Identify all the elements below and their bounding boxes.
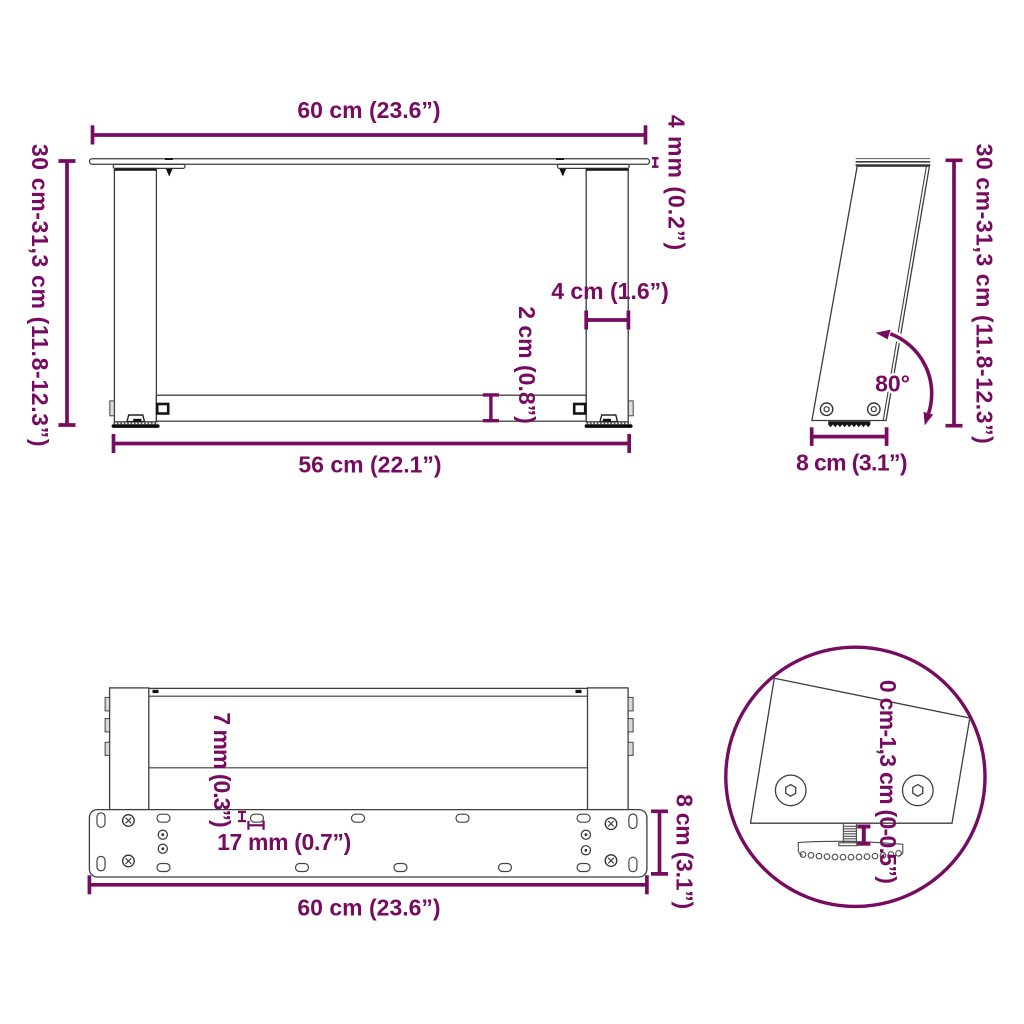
svg-text:4 cm (1.6”): 4 cm (1.6”) (551, 278, 669, 304)
svg-text:30 cm-31,3 cm (11.8-12.3”): 30 cm-31,3 cm (11.8-12.3”) (27, 144, 53, 447)
svg-text:0 cm-1,3 cm (0-0.5”): 0 cm-1,3 cm (0-0.5”) (875, 680, 901, 883)
svg-text:2 cm (0.8”): 2 cm (0.8”) (514, 306, 540, 424)
svg-text:80°: 80° (875, 371, 910, 397)
svg-text:8 cm (3.1”): 8 cm (3.1”) (796, 450, 907, 476)
svg-text:8 cm (3.1”): 8 cm (3.1”) (672, 794, 698, 909)
svg-text:17 mm (0.7”): 17 mm (0.7”) (217, 829, 351, 855)
svg-text:30 cm-31,3 cm (11.8-12.3”): 30 cm-31,3 cm (11.8-12.3”) (972, 144, 998, 445)
svg-text:60 cm (23.6”): 60 cm (23.6”) (297, 97, 440, 123)
svg-text:7 mm (0.3”): 7 mm (0.3”) (209, 712, 235, 827)
svg-text:60 cm (23.6”): 60 cm (23.6”) (297, 895, 440, 921)
svg-text:4 mm (0.2”): 4 mm (0.2”) (664, 115, 690, 251)
svg-text:56 cm (22.1”): 56 cm (22.1”) (298, 452, 441, 478)
